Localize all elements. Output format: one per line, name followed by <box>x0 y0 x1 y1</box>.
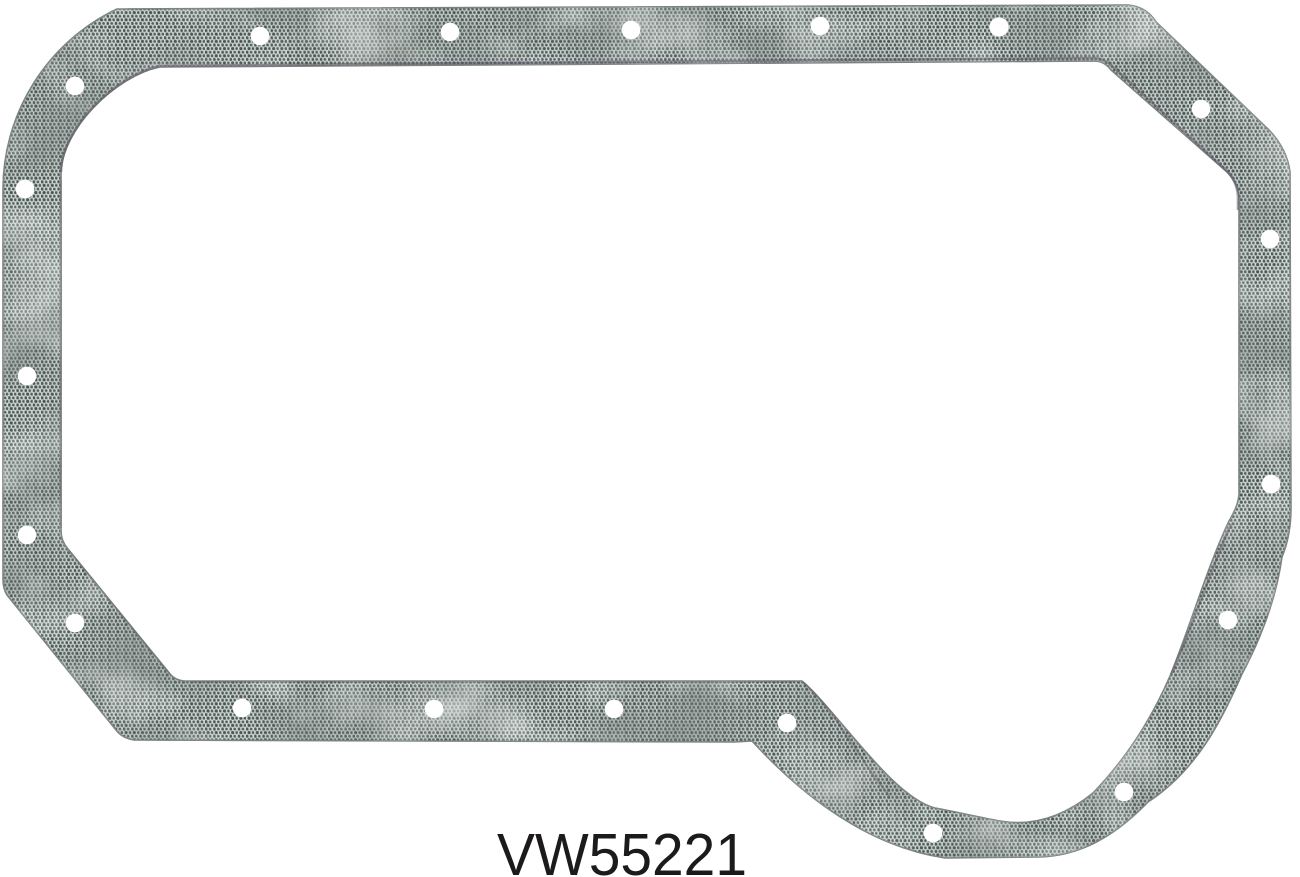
svg-text:VW55221: VW55221 <box>497 821 747 877</box>
